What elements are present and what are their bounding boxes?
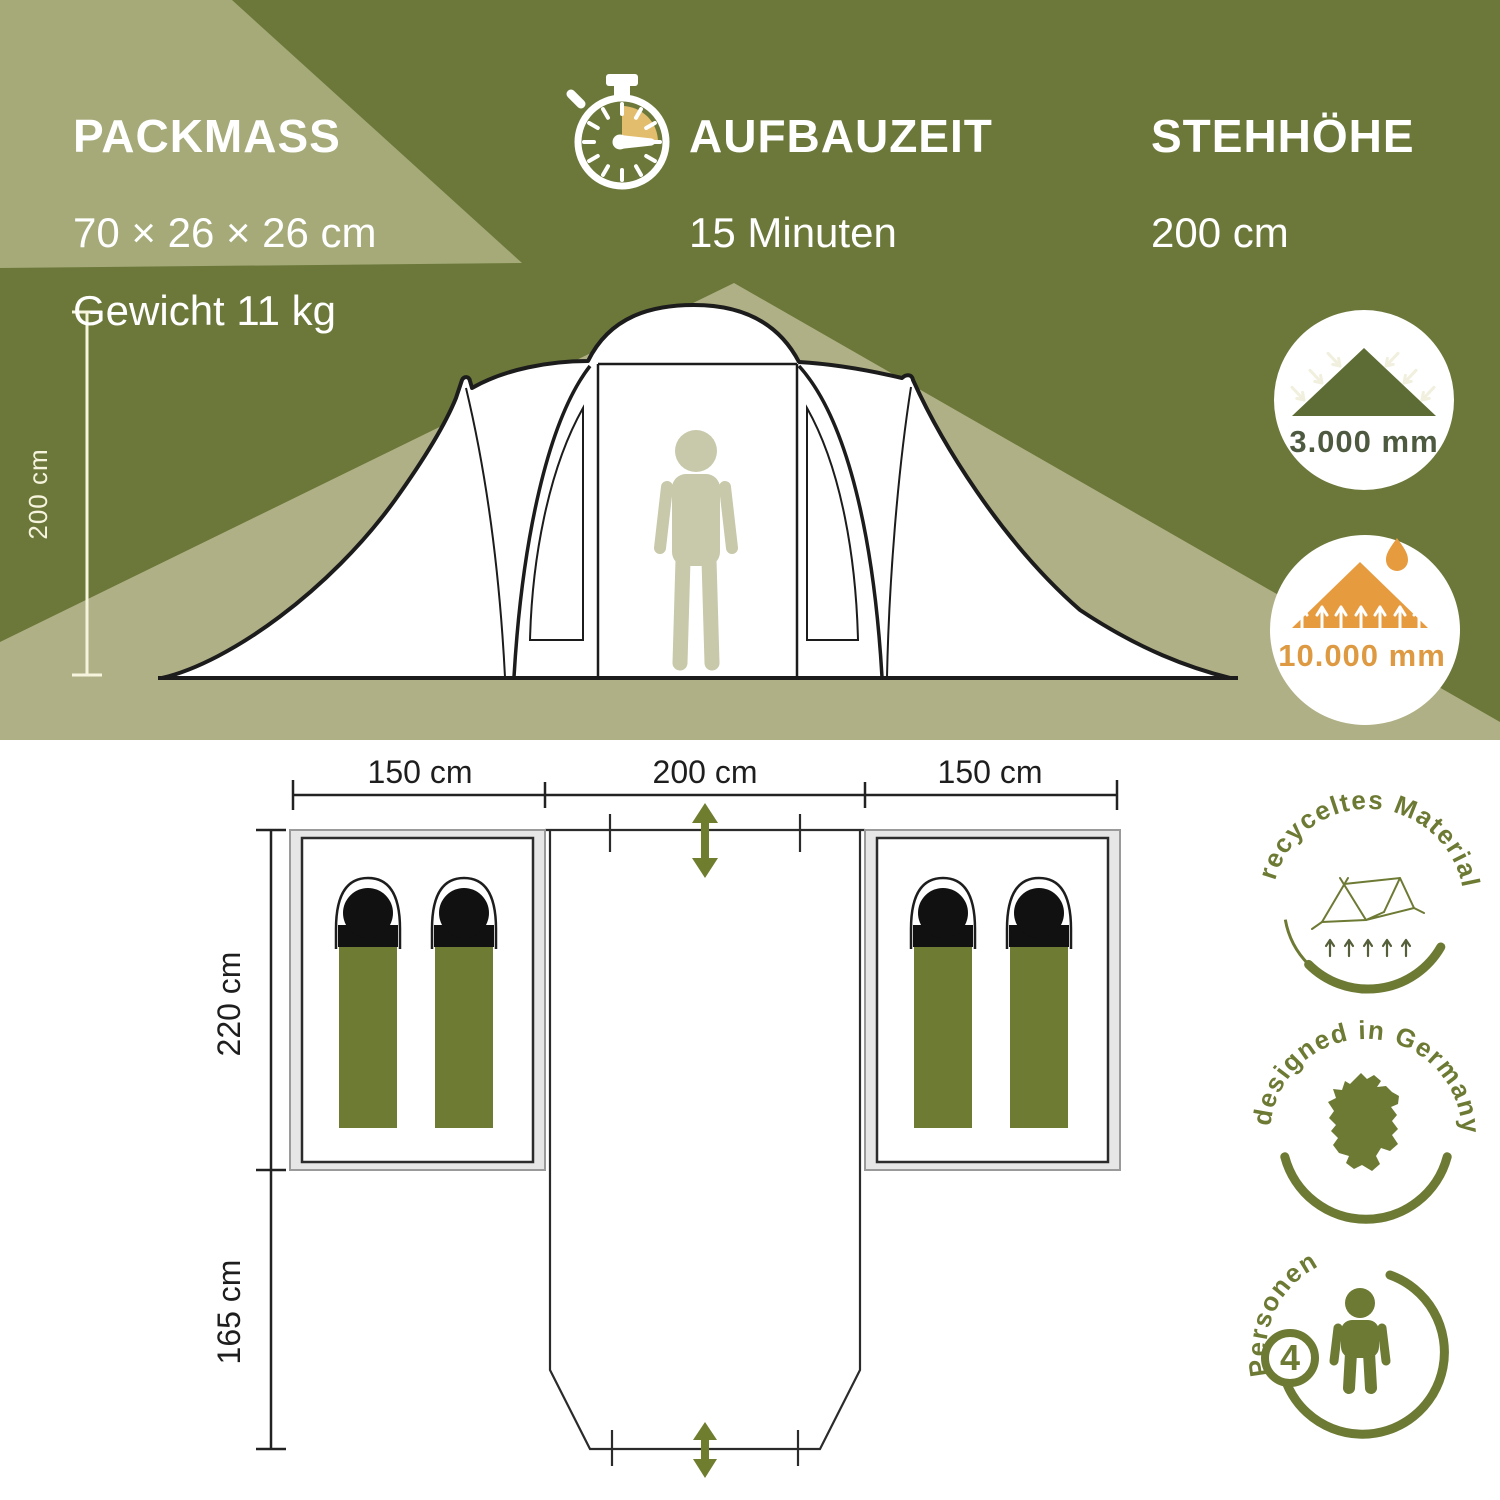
dim-depth-cabin: 220 cm: [211, 952, 247, 1057]
packmass-weight: Gewicht 11 kg: [73, 287, 336, 334]
dim-depth-vestibule: 165 cm: [211, 1260, 247, 1365]
sleeping-cabin-left: [290, 830, 545, 1170]
sleeping-bag: [432, 878, 496, 1128]
packmass-title: PACKMASS: [73, 110, 341, 162]
floor-plan-section: 150 cm 200 cm 150 cm 220 cm 165 cm: [0, 740, 1500, 1500]
stehhoehe-title: STEHHÖHE: [1151, 110, 1415, 162]
tent-height-label: 200 cm: [23, 448, 53, 539]
packmass-dimensions: 70 × 26 × 26 cm: [73, 209, 377, 256]
sleeping-bag: [911, 878, 975, 1128]
dim-width-right: 150 cm: [938, 754, 1043, 790]
top-section: 200 cm PACKMASS 70 × 26 × 26 cm Gewicht …: [0, 0, 1500, 740]
tent-infographic: 200 cm PACKMASS 70 × 26 × 26 cm Gewicht …: [0, 0, 1500, 1500]
water-column-tent-value: 3.000 mm: [1289, 424, 1438, 459]
dim-width-center: 200 cm: [653, 754, 758, 790]
water-column-floor-value: 10.000 mm: [1278, 638, 1446, 673]
persons-count: 4: [1280, 1337, 1300, 1378]
aufbauzeit-title: AUFBAUZEIT: [689, 110, 993, 162]
sleeping-bag: [1007, 878, 1071, 1128]
water-column-floor-badge: 10.000 mm: [1270, 535, 1460, 725]
sleeping-cabin-right: [865, 830, 1120, 1170]
sleeping-bag: [336, 878, 400, 1128]
water-column-tent-badge: 3.000 mm: [1274, 310, 1454, 490]
aufbauzeit-value: 15 Minuten: [689, 209, 897, 256]
stehhoehe-value: 200 cm: [1151, 209, 1289, 256]
dim-width-left: 150 cm: [368, 754, 473, 790]
